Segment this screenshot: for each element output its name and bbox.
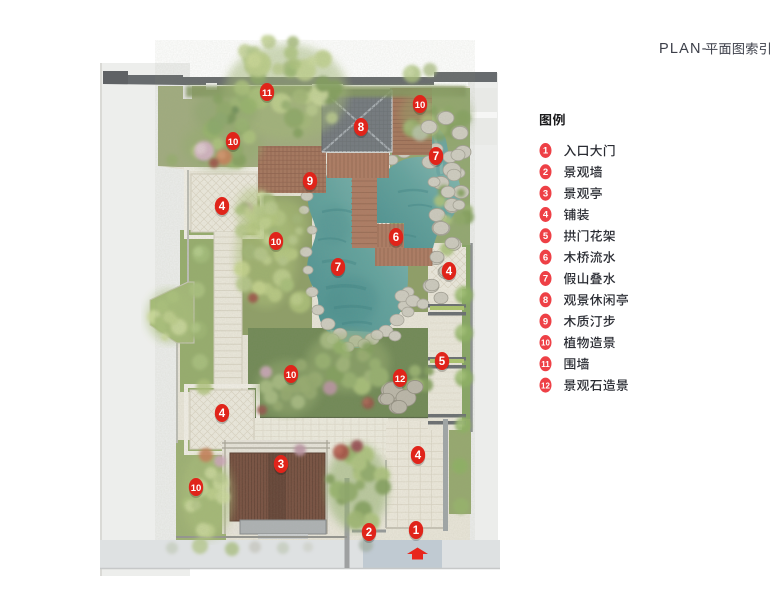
svg-text:6: 6: [543, 252, 548, 263]
svg-text:5: 5: [439, 356, 446, 368]
svg-text:4: 4: [219, 408, 226, 420]
svg-text:9: 9: [543, 316, 548, 327]
svg-text:3: 3: [278, 459, 284, 471]
svg-text:1: 1: [413, 525, 420, 537]
svg-text:12: 12: [541, 381, 550, 390]
svg-text:2: 2: [543, 167, 548, 178]
svg-text:4: 4: [543, 210, 549, 221]
svg-text:5: 5: [543, 231, 549, 242]
svg-text:11: 11: [541, 360, 550, 369]
svg-text:10: 10: [228, 137, 239, 148]
svg-text:12: 12: [395, 374, 406, 385]
svg-text:10: 10: [286, 370, 297, 381]
svg-text:1: 1: [543, 146, 549, 157]
svg-text:8: 8: [358, 122, 365, 134]
svg-text:10: 10: [271, 237, 282, 248]
svg-text:7: 7: [543, 274, 548, 285]
svg-text:10: 10: [541, 339, 550, 348]
svg-text:4: 4: [446, 266, 453, 278]
svg-text:3: 3: [543, 188, 548, 199]
svg-text:9: 9: [307, 176, 313, 188]
svg-text:10: 10: [415, 100, 426, 111]
svg-text:4: 4: [415, 450, 422, 462]
svg-text:7: 7: [335, 262, 341, 274]
svg-text:7: 7: [433, 151, 439, 163]
svg-text:2: 2: [366, 527, 372, 539]
svg-text:PLAN-: PLAN-: [659, 41, 708, 57]
svg-text:8: 8: [543, 295, 548, 306]
svg-text:4: 4: [219, 201, 226, 213]
svg-text:11: 11: [262, 88, 273, 99]
svg-text:10: 10: [191, 483, 202, 494]
svg-text:6: 6: [393, 232, 399, 244]
